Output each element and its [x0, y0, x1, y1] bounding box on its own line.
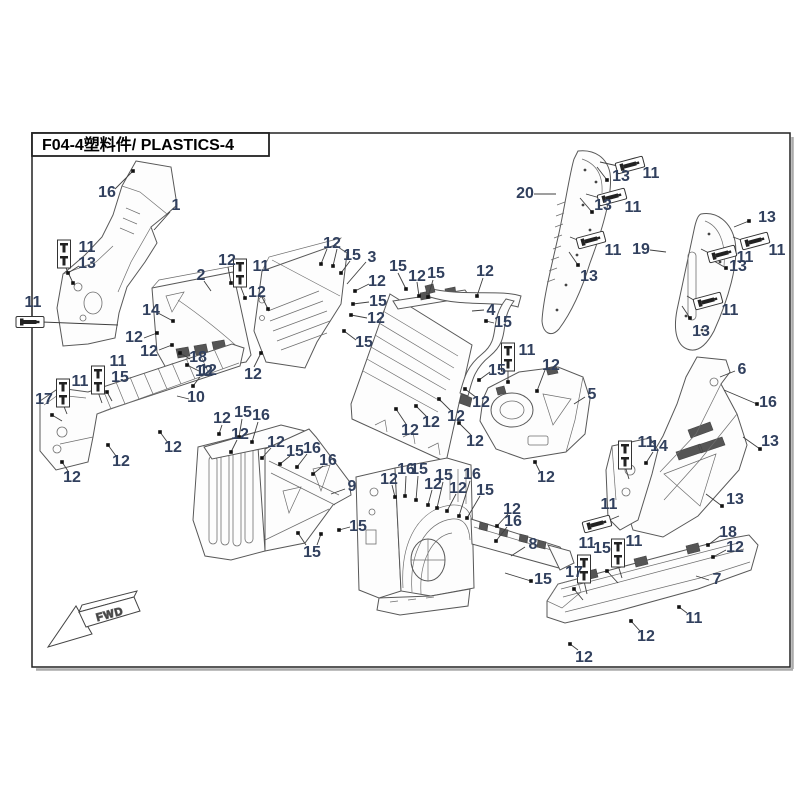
- leader-dot: [339, 271, 343, 275]
- leader-dot: [295, 465, 299, 469]
- screw-shaft: [624, 460, 627, 467]
- callout-16: 16: [319, 452, 337, 469]
- leader-dot: [393, 495, 397, 499]
- callout-12: 12: [422, 414, 440, 431]
- callout-12: 12: [401, 422, 419, 439]
- leader-dot: [66, 271, 70, 275]
- callout-12: 12: [447, 408, 465, 425]
- callout-15: 15: [355, 334, 373, 351]
- leader-line: [398, 273, 406, 289]
- callout-5: 5: [588, 386, 597, 403]
- callout-12: 12: [140, 343, 158, 360]
- callout-12: 12: [218, 252, 236, 269]
- callout-15: 15: [343, 247, 361, 264]
- leader-dot: [457, 514, 461, 518]
- screw-shaft: [624, 447, 627, 454]
- screw-shaft: [24, 320, 37, 324]
- callout-12: 12: [542, 357, 560, 374]
- callout-17: 17: [565, 564, 583, 581]
- leader-dot: [353, 289, 357, 293]
- leader-dot: [191, 384, 195, 388]
- leader-line: [353, 302, 369, 304]
- callout-12: 12: [323, 235, 341, 252]
- leader-dot: [311, 472, 315, 476]
- leader-dot: [477, 378, 481, 382]
- leader-dot: [414, 404, 418, 408]
- callout-1: 1: [172, 197, 181, 214]
- screw-icon: [16, 317, 44, 328]
- callout-15: 15: [534, 571, 552, 588]
- callout-11: 11: [253, 258, 270, 275]
- leader-dot: [331, 264, 335, 268]
- screw-head: [236, 262, 244, 265]
- leader-dot: [426, 295, 430, 299]
- callout-16: 16: [252, 407, 270, 424]
- leader-dot: [576, 263, 580, 267]
- leader-dot: [171, 319, 175, 323]
- screw-shaft: [507, 349, 510, 356]
- callout-11: 11: [72, 373, 89, 390]
- leader-dot: [706, 543, 710, 547]
- screw-head: [580, 558, 588, 561]
- leader-dot: [506, 380, 510, 384]
- screw-shaft: [617, 545, 620, 552]
- screw-pair-icon: [57, 379, 70, 407]
- callout-15: 15: [349, 518, 367, 535]
- callout-15: 15: [286, 443, 304, 460]
- leader-dot: [426, 503, 430, 507]
- leader-dot: [259, 351, 263, 355]
- screw-shaft: [239, 278, 242, 285]
- callout-12: 12: [537, 469, 555, 486]
- screw-head: [94, 369, 102, 372]
- leader-dot: [568, 642, 572, 646]
- callout-13: 13: [594, 197, 612, 214]
- callout-14: 14: [650, 438, 668, 455]
- leader-line: [472, 310, 484, 311]
- leader-dot: [529, 579, 533, 583]
- leader-line: [355, 284, 369, 291]
- callout-12: 12: [368, 273, 386, 290]
- screw-head: [59, 382, 67, 385]
- callout-12: 12: [213, 410, 231, 427]
- callout-13: 13: [580, 268, 598, 285]
- callout-11: 11: [686, 610, 703, 627]
- screw-head: [621, 444, 629, 447]
- leader-dot: [155, 331, 159, 335]
- callout-15: 15: [111, 369, 129, 386]
- callout-12: 12: [476, 263, 494, 280]
- callout-13: 13: [78, 255, 96, 272]
- callout-12: 12: [195, 363, 213, 380]
- callout-10: 10: [187, 389, 205, 406]
- leader-dot: [445, 509, 449, 513]
- callout-12: 12: [466, 433, 484, 450]
- callout-11: 11: [605, 242, 622, 259]
- screw-shaft: [507, 362, 510, 369]
- screw-icon: [740, 232, 770, 250]
- leader-dot: [296, 531, 300, 535]
- leader-line: [347, 262, 366, 284]
- callout-13: 13: [692, 323, 710, 340]
- callout-15: 15: [303, 544, 321, 561]
- callout-3: 3: [368, 249, 377, 266]
- leader-dot: [178, 351, 182, 355]
- leader-dot: [105, 390, 109, 394]
- callout-15: 15: [369, 293, 387, 310]
- screw-shaft: [97, 385, 100, 392]
- leader-line: [144, 333, 157, 338]
- leader-dot: [747, 219, 751, 223]
- callout-11: 11: [625, 199, 642, 216]
- callout-13: 13: [758, 209, 776, 226]
- leader-dot: [475, 294, 479, 298]
- leader-dot: [463, 387, 467, 391]
- callout-12: 12: [472, 394, 490, 411]
- callout-11: 11: [25, 294, 42, 311]
- leader-dot: [243, 296, 247, 300]
- screw-shaft: [583, 561, 586, 568]
- screw-shaft: [583, 574, 586, 581]
- screw-head: [60, 256, 68, 259]
- screw-shaft: [62, 398, 65, 405]
- callout-13: 13: [761, 433, 779, 450]
- leader-dot: [417, 294, 421, 298]
- leader-dot: [71, 281, 75, 285]
- callout-6: 6: [738, 361, 747, 378]
- callout-15: 15: [234, 404, 252, 421]
- callout-11: 11: [79, 239, 96, 256]
- leader-dot: [688, 316, 692, 320]
- leader-dot: [677, 605, 681, 609]
- leader-dot: [711, 555, 715, 559]
- part-5: [480, 366, 590, 459]
- callout-12: 12: [575, 649, 593, 666]
- callout-12: 12: [367, 310, 385, 327]
- callout-12: 12: [231, 426, 249, 443]
- leader-dot: [349, 313, 353, 317]
- screw-shaft: [63, 246, 66, 253]
- leader-dot: [342, 329, 346, 333]
- callout-15: 15: [488, 362, 506, 379]
- leader-dot: [605, 178, 609, 182]
- leader-dot: [437, 397, 441, 401]
- screw-head: [614, 555, 622, 558]
- callout-11: 11: [519, 342, 536, 359]
- leader-dot: [403, 494, 407, 498]
- callout-20: 20: [516, 185, 534, 202]
- leader-dot: [535, 389, 539, 393]
- screw-shaft: [239, 265, 242, 272]
- leader-dot: [50, 413, 54, 417]
- callout-12: 12: [637, 628, 655, 645]
- leader-dot: [60, 460, 64, 464]
- leader-dot: [629, 619, 633, 623]
- leader-dot: [319, 262, 323, 266]
- leader-dot: [229, 450, 233, 454]
- callout-9: 9: [348, 478, 357, 495]
- leader-dot: [278, 462, 282, 466]
- leader-dot: [414, 498, 418, 502]
- leader-dot: [131, 169, 135, 173]
- screw-head: [59, 395, 67, 398]
- leader-dot: [394, 407, 398, 411]
- screw-head: [236, 275, 244, 278]
- callout-12: 12: [726, 539, 744, 556]
- screw-head: [614, 542, 622, 545]
- leader-dot: [266, 307, 270, 311]
- screw-shaft: [97, 372, 100, 379]
- leader-dot: [229, 281, 233, 285]
- screw-pair-icon: [92, 366, 105, 394]
- callout-13: 13: [612, 168, 630, 185]
- leader-dot: [494, 539, 498, 543]
- callout-11: 11: [626, 533, 643, 550]
- callout-15: 15: [389, 258, 407, 275]
- parts-diagram: F04-4塑料件/ PLASTICS-4: [0, 0, 800, 800]
- screw-icon: [582, 515, 612, 533]
- callout-13: 13: [729, 258, 747, 275]
- callout-17: 17: [35, 391, 53, 408]
- leader-dot: [533, 460, 537, 464]
- leader-line: [351, 315, 367, 318]
- leader-dot: [351, 302, 355, 306]
- callout-15: 15: [494, 314, 512, 331]
- leader-line: [650, 250, 666, 252]
- leader-dot: [158, 430, 162, 434]
- callout-11: 11: [643, 165, 660, 182]
- callout-8: 8: [529, 536, 538, 553]
- leader-dot: [217, 432, 221, 436]
- leader-dot: [250, 440, 254, 444]
- screw-shaft: [63, 259, 66, 266]
- leader-dot: [724, 266, 728, 270]
- leader-dot: [644, 461, 648, 465]
- leader-dot: [337, 528, 341, 532]
- screw-head: [621, 457, 629, 460]
- screw-pair-icon: [58, 240, 71, 268]
- leader-line: [505, 573, 531, 581]
- leader-dot: [106, 443, 110, 447]
- fwd-arrow: FWD: [48, 591, 140, 647]
- screw-head: [20, 319, 24, 326]
- callout-12: 12: [244, 366, 262, 383]
- callout-15: 15: [593, 540, 611, 557]
- screw-pair-icon: [619, 441, 632, 469]
- callout-12: 12: [63, 469, 81, 486]
- screw-shaft: [617, 558, 620, 565]
- callout-15: 15: [476, 482, 494, 499]
- callout-7: 7: [713, 571, 722, 588]
- leader-line: [254, 353, 261, 367]
- leader-dot: [170, 343, 174, 347]
- screw-head: [60, 243, 68, 246]
- callout-11: 11: [110, 353, 127, 370]
- callout-16: 16: [759, 394, 777, 411]
- leader-dot: [465, 516, 469, 520]
- screw-head: [94, 382, 102, 385]
- callout-12: 12: [267, 434, 285, 451]
- callout-12: 12: [380, 471, 398, 488]
- callout-13: 13: [726, 491, 744, 508]
- screw-shaft: [62, 385, 65, 392]
- page-title: F04-4塑料件/ PLASTICS-4: [42, 135, 234, 154]
- callout-11: 11: [601, 496, 618, 513]
- callout-14: 14: [142, 302, 160, 319]
- leader-dot: [319, 532, 323, 536]
- leader-dot: [404, 287, 408, 291]
- leader-dot: [572, 587, 576, 591]
- leader-dot: [720, 504, 724, 508]
- callout-11: 11: [722, 302, 739, 319]
- callout-16: 16: [98, 184, 116, 201]
- callout-16: 16: [504, 513, 522, 530]
- callout-12: 12: [408, 268, 426, 285]
- leader-dot: [605, 569, 609, 573]
- callout-2: 2: [197, 267, 206, 284]
- leader-line: [734, 221, 749, 227]
- callout-12: 12: [112, 453, 130, 470]
- callout-15: 15: [427, 265, 445, 282]
- screw-pair-icon: [612, 539, 625, 567]
- leader-dot: [435, 506, 439, 510]
- leader-dot: [260, 456, 264, 460]
- screw-head: [504, 346, 512, 349]
- callout-16: 16: [463, 466, 481, 483]
- leader-dot: [495, 524, 499, 528]
- callout-11: 11: [769, 242, 786, 259]
- callout-12: 12: [248, 284, 266, 301]
- screw-tip: [37, 321, 40, 323]
- leader-dot: [484, 319, 488, 323]
- callout-19: 19: [632, 241, 650, 258]
- callout-12: 12: [164, 439, 182, 456]
